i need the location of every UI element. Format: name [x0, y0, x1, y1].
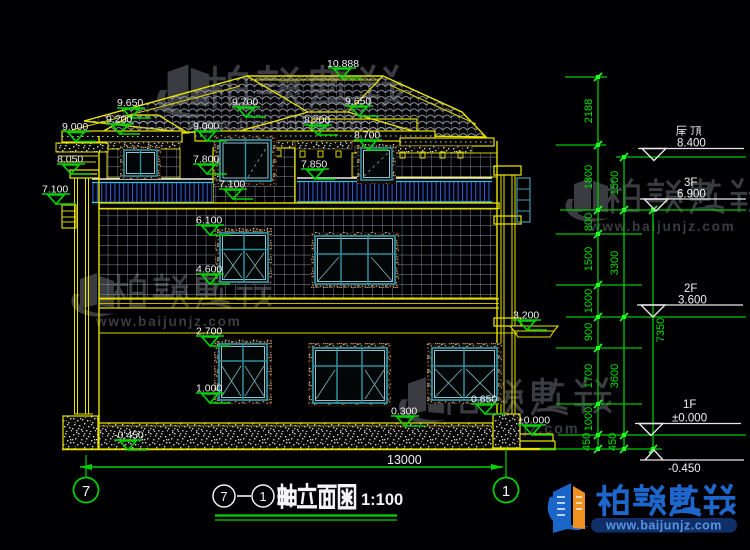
- svg-text:8.400: 8.400: [677, 138, 706, 150]
- svg-text:1000: 1000: [583, 407, 595, 431]
- svg-text:1700: 1700: [583, 364, 595, 388]
- svg-text:3.600: 3.600: [678, 295, 707, 307]
- svg-text:9.650: 9.650: [117, 97, 143, 109]
- svg-text:3600: 3600: [609, 364, 621, 388]
- svg-text:7: 7: [220, 489, 227, 504]
- svg-text:1: 1: [502, 483, 510, 500]
- svg-text:1F: 1F: [683, 399, 696, 411]
- svg-text:450: 450: [607, 433, 619, 451]
- svg-text:450: 450: [581, 433, 593, 451]
- svg-text:7: 7: [82, 483, 90, 500]
- svg-text:1: 1: [259, 489, 266, 504]
- svg-text:7350: 7350: [655, 318, 667, 342]
- svg-text:1:100: 1:100: [361, 491, 403, 509]
- svg-text:1000: 1000: [583, 289, 595, 313]
- svg-text:1800: 1800: [583, 165, 595, 189]
- svg-text:3300: 3300: [609, 251, 621, 275]
- svg-text:±0.000: ±0.000: [672, 413, 707, 425]
- svg-text:2F: 2F: [684, 283, 697, 295]
- svg-text:2188: 2188: [583, 99, 595, 123]
- svg-text:1500: 1500: [583, 247, 595, 271]
- svg-text:900: 900: [583, 323, 595, 341]
- svg-text:1500: 1500: [609, 171, 621, 195]
- svg-text:3F: 3F: [684, 177, 697, 189]
- svg-text:www.baijunjz.com: www.baijunjz.com: [605, 519, 722, 533]
- svg-text:800: 800: [583, 213, 595, 231]
- svg-text:-0.450: -0.450: [668, 463, 701, 475]
- svg-text:13000: 13000: [387, 453, 422, 467]
- svg-text:6.900: 6.900: [677, 189, 706, 201]
